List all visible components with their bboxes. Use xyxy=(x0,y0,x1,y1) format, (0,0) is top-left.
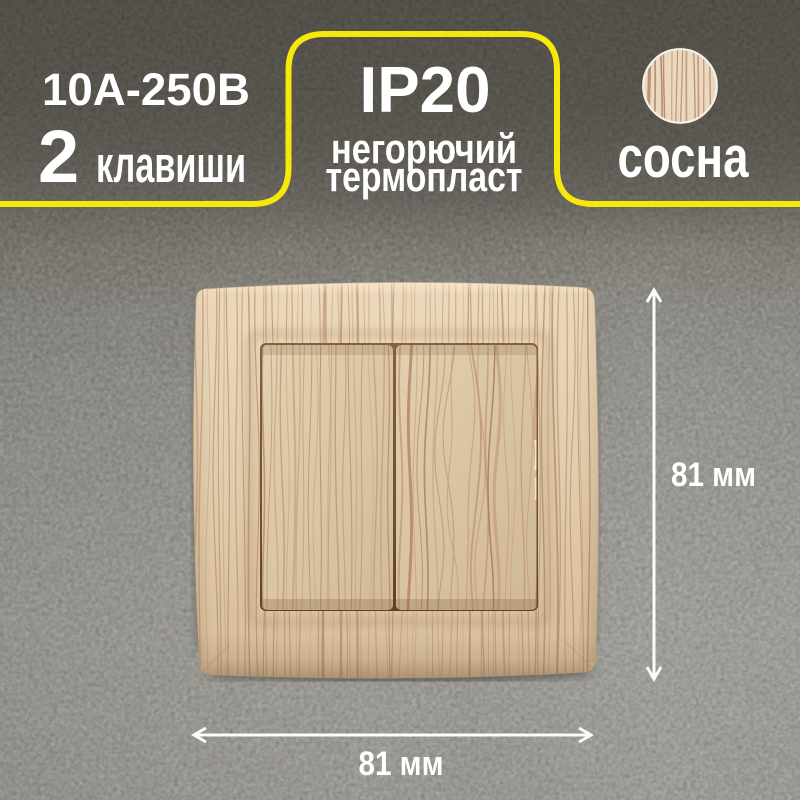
svg-text:81 мм: 81 мм xyxy=(359,745,444,783)
svg-text:2: 2 xyxy=(38,115,79,198)
svg-text:сосна: сосна xyxy=(618,125,750,190)
svg-text:клавиши: клавиши xyxy=(96,136,246,193)
svg-text:термопласт: термопласт xyxy=(326,153,523,200)
svg-text:10А-250В: 10А-250В xyxy=(42,64,250,115)
svg-text:IP20: IP20 xyxy=(360,53,491,126)
svg-text:81 мм: 81 мм xyxy=(671,456,756,494)
